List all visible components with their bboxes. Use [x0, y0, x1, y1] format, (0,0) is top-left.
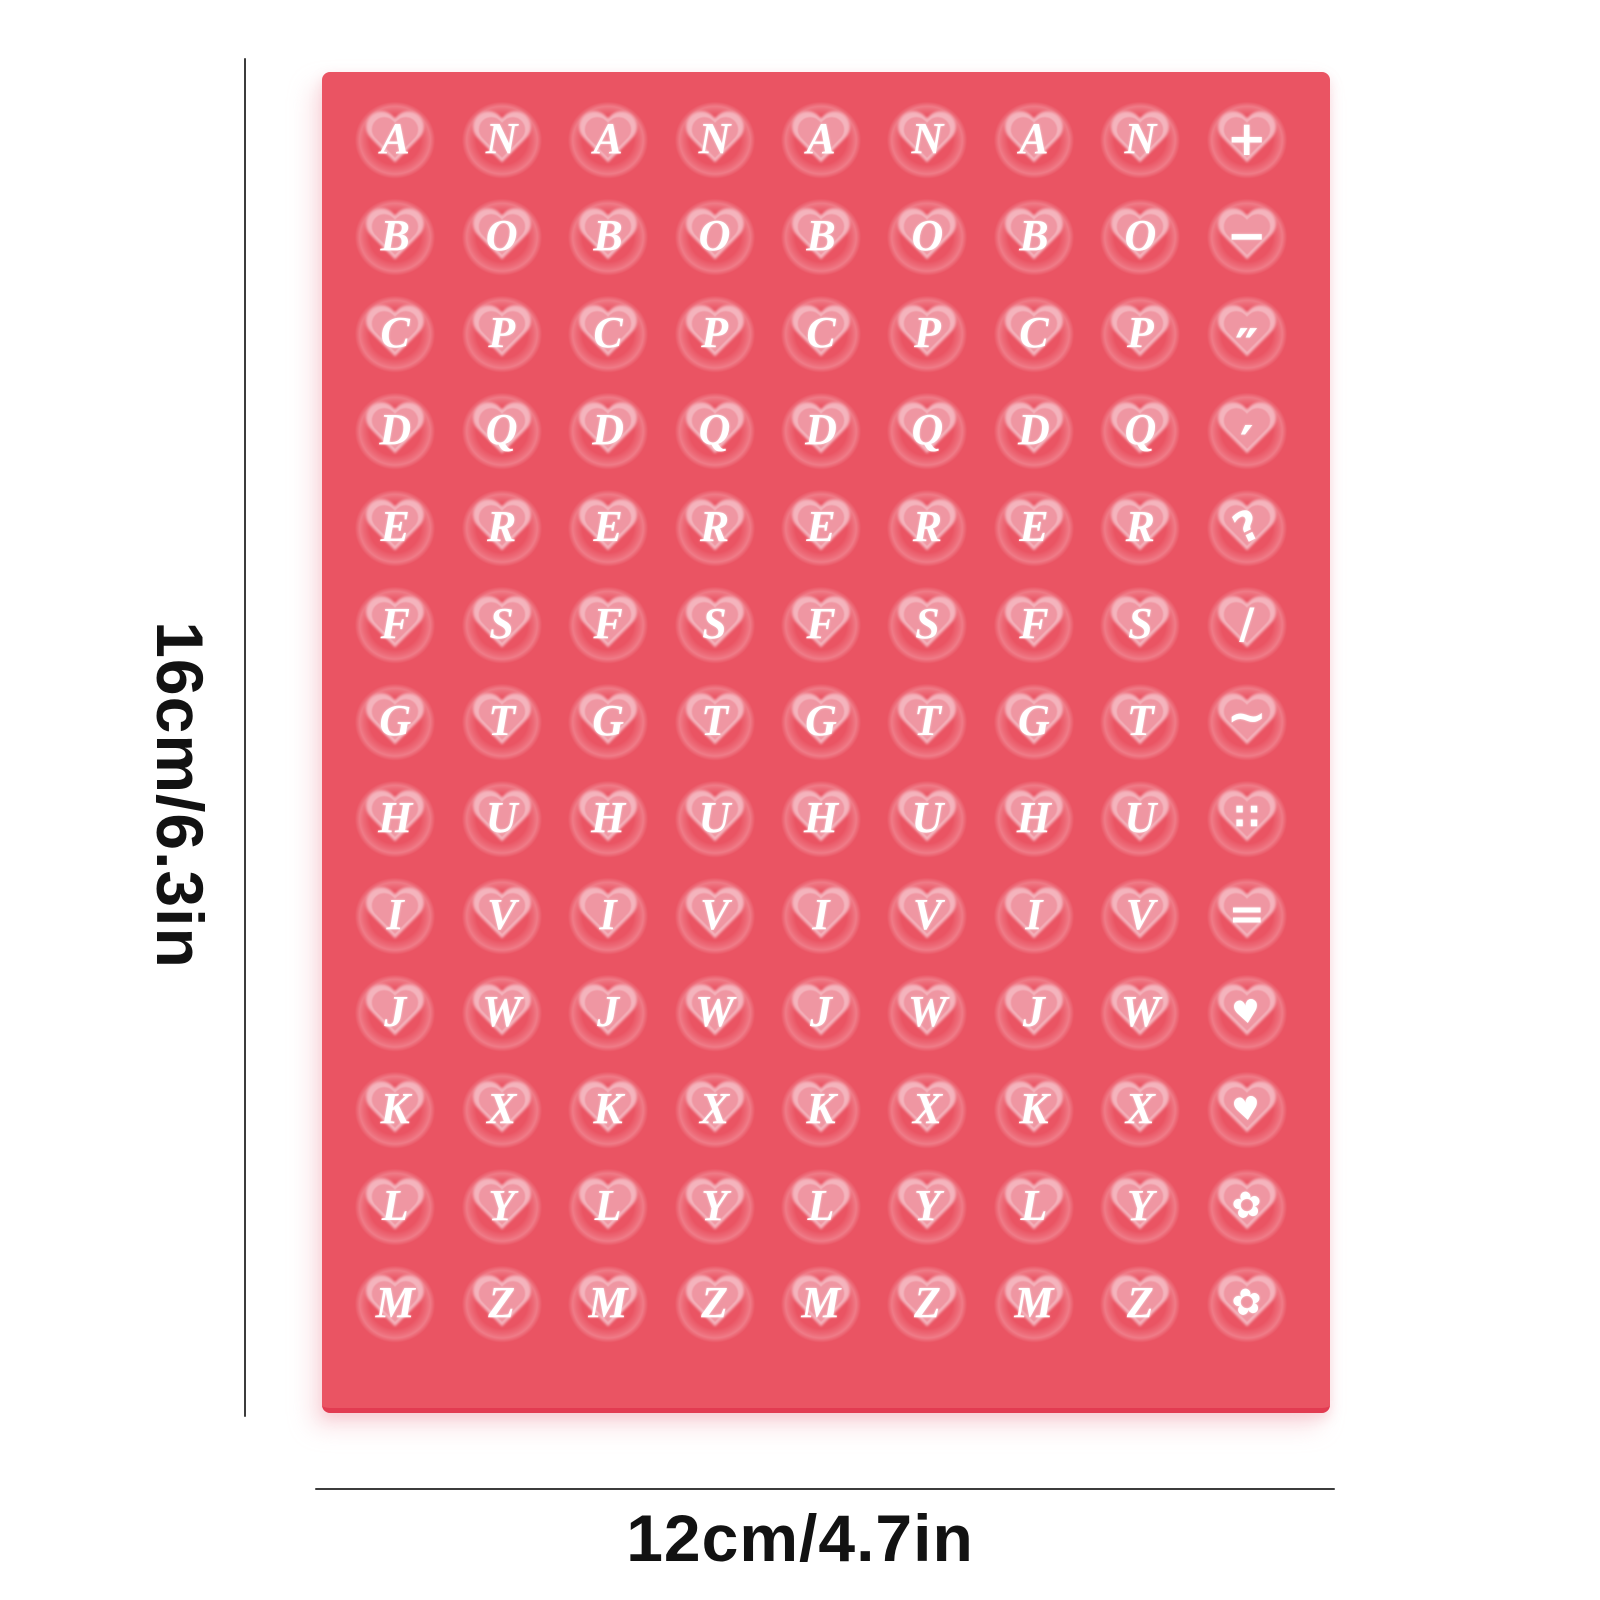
- sticker-letter-x: X: [1087, 1065, 1193, 1162]
- sticker-letter-glyph: I: [812, 893, 829, 937]
- sticker-letter-y: Y: [874, 1162, 980, 1259]
- sticker-letter-glyph: N: [699, 117, 731, 161]
- sticker-letter-glyph: S: [1128, 602, 1152, 646]
- sticker-letter-t: T: [661, 676, 767, 773]
- sticker-letter-a: A: [555, 94, 661, 191]
- sticker-letter-k: K: [768, 1065, 874, 1162]
- sticker-letter-r: R: [661, 482, 767, 579]
- sticker-letter-glyph: T: [1127, 699, 1154, 743]
- sticker-letter-glyph: X: [700, 1087, 729, 1131]
- sticker-letter-p: P: [448, 288, 554, 385]
- sticker-symbol-glyph: ″: [1235, 323, 1258, 375]
- sticker-symbol-quote: ″: [1194, 288, 1300, 385]
- sticker-letter-t: T: [874, 676, 980, 773]
- sticker-symbol-glyph: ~: [1227, 693, 1267, 741]
- sticker-letter-h: H: [342, 774, 448, 871]
- sticker-letter-u: U: [1087, 774, 1193, 871]
- sticker-letter-glyph: Y: [701, 1184, 728, 1228]
- sticker-letter-r: R: [448, 482, 554, 579]
- sticker-letter-glyph: X: [1126, 1087, 1155, 1131]
- sticker-letter-glyph: T: [701, 699, 728, 743]
- sticker-letter-glyph: F: [593, 602, 622, 646]
- sticker-letter-v: V: [1087, 871, 1193, 968]
- sticker-letter-q: Q: [874, 385, 980, 482]
- sticker-letter-r: R: [1087, 482, 1193, 579]
- sticker-letter-glyph: A: [593, 117, 622, 161]
- sticker-letter-glyph: J: [810, 990, 832, 1034]
- sticker-letter-glyph: P: [914, 311, 941, 355]
- sticker-letter-a: A: [981, 94, 1087, 191]
- sticker-letter-glyph: H: [1017, 796, 1051, 840]
- sticker-letter-glyph: A: [381, 117, 410, 161]
- sticker-letter-glyph: K: [1019, 1087, 1048, 1131]
- sticker-letter-g: G: [555, 676, 661, 773]
- sticker-letter-f: F: [342, 579, 448, 676]
- sticker-letter-n: N: [661, 94, 767, 191]
- sticker-letter-b: B: [981, 191, 1087, 288]
- sticker-letter-g: G: [768, 676, 874, 773]
- sticker-letter-glyph: E: [593, 505, 622, 549]
- sticker-letter-l: L: [981, 1162, 1087, 1259]
- sticker-letter-q: Q: [661, 385, 767, 482]
- sticker-letter-glyph: R: [913, 505, 942, 549]
- sticker-letter-glyph: A: [806, 117, 835, 161]
- sticker-letter-h: H: [981, 774, 1087, 871]
- sticker-letter-x: X: [448, 1065, 554, 1162]
- sticker-letter-glyph: O: [699, 214, 731, 258]
- sticker-letter-p: P: [661, 288, 767, 385]
- sticker-symbol-glyph: =: [1228, 893, 1265, 937]
- sticker-letter-glyph: Y: [488, 1184, 515, 1228]
- sticker-letter-c: C: [555, 288, 661, 385]
- sticker-letter-d: D: [981, 385, 1087, 482]
- sticker-letter-h: H: [768, 774, 874, 871]
- sticker-letter-glyph: E: [806, 505, 835, 549]
- sticker-letter-glyph: G: [379, 699, 411, 743]
- sticker-letter-glyph: W: [908, 990, 947, 1034]
- sticker-letter-glyph: M: [376, 1281, 415, 1325]
- sticker-letter-glyph: Z: [701, 1281, 728, 1325]
- sticker-letter-glyph: U: [912, 796, 944, 840]
- sticker-letter-f: F: [768, 579, 874, 676]
- sticker-letter-glyph: J: [1023, 990, 1045, 1034]
- sticker-letter-k: K: [342, 1065, 448, 1162]
- sticker-letter-s: S: [661, 579, 767, 676]
- sticker-letter-y: Y: [1087, 1162, 1193, 1259]
- sticker-symbol-slash: /: [1194, 579, 1300, 676]
- sticker-symbol-flower: ✿: [1194, 1259, 1300, 1356]
- sticker-letter-glyph: T: [914, 699, 941, 743]
- sticker-letter-glyph: Q: [912, 408, 944, 452]
- sticker-symbol-heart: ♥: [1194, 968, 1300, 1065]
- height-dimension-line: [244, 58, 246, 1417]
- sticker-letter-glyph: O: [486, 214, 518, 258]
- sticker-letter-glyph: H: [378, 796, 412, 840]
- sticker-letter-glyph: Z: [914, 1281, 941, 1325]
- sticker-letter-glyph: Z: [1127, 1281, 1154, 1325]
- sticker-letter-glyph: U: [486, 796, 518, 840]
- sticker-letter-w: W: [1087, 968, 1193, 1065]
- sticker-letter-glyph: Q: [1124, 408, 1156, 452]
- sticker-letter-glyph: K: [806, 1087, 835, 1131]
- sticker-letter-glyph: U: [1124, 796, 1156, 840]
- sticker-letter-b: B: [555, 191, 661, 288]
- sticker-letter-s: S: [1087, 579, 1193, 676]
- sticker-letter-glyph: W: [1121, 990, 1160, 1034]
- sticker-letter-u: U: [661, 774, 767, 871]
- sticker-letter-a: A: [768, 94, 874, 191]
- sticker-letter-c: C: [342, 288, 448, 385]
- sticker-letter-glyph: N: [912, 117, 944, 161]
- sticker-letter-d: D: [342, 385, 448, 482]
- sticker-letter-glyph: R: [700, 505, 729, 549]
- sticker-letter-glyph: F: [1019, 602, 1048, 646]
- sticker-letter-c: C: [768, 288, 874, 385]
- sticker-letter-glyph: H: [804, 796, 838, 840]
- sticker-letter-n: N: [448, 94, 554, 191]
- sticker-letter-s: S: [874, 579, 980, 676]
- sticker-letter-glyph: I: [387, 893, 404, 937]
- sticker-letter-u: U: [448, 774, 554, 871]
- sticker-letter-glyph: B: [593, 214, 622, 258]
- sticker-letter-glyph: P: [488, 311, 515, 355]
- sticker-letter-glyph: C: [593, 311, 622, 355]
- sticker-letter-y: Y: [661, 1162, 767, 1259]
- sticker-symbol-glyph: ♥: [1230, 994, 1263, 1030]
- sticker-letter-glyph: M: [801, 1281, 840, 1325]
- sticker-letter-r: R: [874, 482, 980, 579]
- sticker-letter-glyph: L: [1020, 1184, 1047, 1228]
- sticker-letter-glyph: E: [1019, 505, 1048, 549]
- sticker-letter-glyph: U: [699, 796, 731, 840]
- sticker-letter-glyph: K: [593, 1087, 622, 1131]
- sticker-letter-glyph: C: [806, 311, 835, 355]
- sticker-letter-h: H: [555, 774, 661, 871]
- sticker-letter-o: O: [448, 191, 554, 288]
- sticker-letter-glyph: D: [805, 408, 837, 452]
- sticker-letter-glyph: L: [382, 1184, 409, 1228]
- sticker-letter-glyph: Z: [488, 1281, 515, 1325]
- sticker-letter-glyph: K: [381, 1087, 410, 1131]
- sticker-letter-glyph: T: [488, 699, 515, 743]
- sticker-letter-z: Z: [874, 1259, 980, 1356]
- sticker-letter-l: L: [768, 1162, 874, 1259]
- sticker-symbol-glyph: −: [1227, 212, 1267, 260]
- sticker-letter-e: E: [981, 482, 1087, 579]
- sticker-letter-t: T: [1087, 676, 1193, 773]
- sticker-letter-glyph: N: [1124, 117, 1156, 161]
- sticker-letter-f: F: [555, 579, 661, 676]
- sticker-letter-j: J: [555, 968, 661, 1065]
- sticker-letter-n: N: [874, 94, 980, 191]
- sticker-letter-m: M: [981, 1259, 1087, 1356]
- sticker-letter-glyph: J: [384, 990, 406, 1034]
- sticker-letter-w: W: [448, 968, 554, 1065]
- sticker-symbol-glyph: ♥: [1230, 1091, 1263, 1127]
- product-image: 16cm/6.3in ANANANAN+BOBOBOBO−CPCPCPCP″DQ…: [0, 0, 1600, 1600]
- sticker-letter-z: Z: [661, 1259, 767, 1356]
- height-dimension-label: 16cm/6.3in: [140, 585, 220, 1005]
- sticker-letter-i: I: [342, 871, 448, 968]
- sticker-symbol-tilde: ~: [1194, 676, 1300, 773]
- sticker-letter-glyph: M: [589, 1281, 628, 1325]
- sticker-letter-q: Q: [1087, 385, 1193, 482]
- sticker-letter-v: V: [448, 871, 554, 968]
- sticker-letter-z: Z: [448, 1259, 554, 1356]
- sticker-letter-glyph: C: [381, 311, 410, 355]
- sticker-letter-glyph: J: [597, 990, 619, 1034]
- sticker-letter-glyph: L: [595, 1184, 622, 1228]
- sticker-letter-z: Z: [1087, 1259, 1193, 1356]
- sticker-letter-a: A: [342, 94, 448, 191]
- sticker-letter-v: V: [661, 871, 767, 968]
- sticker-letter-glyph: W: [482, 990, 521, 1034]
- sticker-letter-b: B: [342, 191, 448, 288]
- sticker-letter-glyph: C: [1019, 311, 1048, 355]
- sticker-letter-o: O: [874, 191, 980, 288]
- sticker-letter-glyph: Q: [699, 408, 731, 452]
- sticker-letter-j: J: [981, 968, 1087, 1065]
- sticker-letter-glyph: D: [379, 408, 411, 452]
- sticker-letter-i: I: [555, 871, 661, 968]
- sticker-letter-i: I: [981, 871, 1087, 968]
- sticker-letter-glyph: V: [1126, 893, 1155, 937]
- sticker-letter-glyph: Y: [914, 1184, 941, 1228]
- sticker-letter-g: G: [981, 676, 1087, 773]
- sticker-letter-t: T: [448, 676, 554, 773]
- sticker-letter-m: M: [342, 1259, 448, 1356]
- sticker-letter-glyph: G: [805, 699, 837, 743]
- sticker-letter-j: J: [342, 968, 448, 1065]
- sticker-letter-glyph: L: [808, 1184, 835, 1228]
- sticker-symbol-equals: =: [1194, 871, 1300, 968]
- sticker-letter-k: K: [981, 1065, 1087, 1162]
- sticker-letter-glyph: G: [592, 699, 624, 743]
- sticker-letter-glyph: S: [915, 602, 939, 646]
- sticker-letter-glyph: S: [489, 602, 513, 646]
- sticker-letter-d: D: [768, 385, 874, 482]
- sticker-letter-glyph: S: [702, 602, 726, 646]
- sticker-symbol-glyph: ′: [1240, 420, 1254, 472]
- sticker-letter-glyph: P: [701, 311, 728, 355]
- sticker-letter-n: N: [1087, 94, 1193, 191]
- sticker-letter-e: E: [768, 482, 874, 579]
- sticker-letter-glyph: W: [695, 990, 734, 1034]
- sticker-symbol-question: ?: [1194, 482, 1300, 579]
- sticker-letter-y: Y: [448, 1162, 554, 1259]
- sticker-letter-i: I: [768, 871, 874, 968]
- sticker-letter-glyph: F: [806, 602, 835, 646]
- sticker-symbol-glyph: ✿: [1229, 1186, 1265, 1227]
- sticker-symbol-glyph: ✿: [1229, 1283, 1265, 1324]
- sticker-letter-glyph: I: [1025, 893, 1042, 937]
- sticker-letter-o: O: [1087, 191, 1193, 288]
- sticker-letter-w: W: [874, 968, 980, 1065]
- sticker-letter-p: P: [1087, 288, 1193, 385]
- sticker-letter-glyph: B: [381, 214, 410, 258]
- sticker-letter-glyph: A: [1019, 117, 1048, 161]
- sticker-letter-glyph: R: [487, 505, 516, 549]
- sticker-symbol-plus: +: [1194, 94, 1300, 191]
- sticker-symbol-glyph: +: [1227, 115, 1267, 163]
- sticker-letter-o: O: [661, 191, 767, 288]
- sticker-letter-glyph: X: [487, 1087, 516, 1131]
- sticker-symbol-apostrophe: ′: [1194, 385, 1300, 482]
- sticker-letter-glyph: R: [1126, 505, 1155, 549]
- sticker-letter-x: X: [874, 1065, 980, 1162]
- sticker-letter-s: S: [448, 579, 554, 676]
- sticker-grid: ANANANAN+BOBOBOBO−CPCPCPCP″DQDQDQDQ′ERER…: [322, 72, 1330, 1408]
- sticker-letter-b: B: [768, 191, 874, 288]
- sticker-letter-glyph: D: [1018, 408, 1050, 452]
- sticker-letter-d: D: [555, 385, 661, 482]
- sticker-sheet: ANANANAN+BOBOBOBO−CPCPCPCP″DQDQDQDQ′ERER…: [322, 72, 1330, 1413]
- sticker-symbol-glyph: /: [1239, 603, 1254, 645]
- width-dimension-label: 12cm/4.7in: [550, 1502, 1050, 1574]
- sticker-symbol-minus: −: [1194, 191, 1300, 288]
- sticker-letter-glyph: E: [381, 505, 410, 549]
- sticker-letter-m: M: [555, 1259, 661, 1356]
- sticker-letter-glyph: P: [1127, 311, 1154, 355]
- sticker-letter-l: L: [342, 1162, 448, 1259]
- sticker-letter-c: C: [981, 288, 1087, 385]
- sticker-letter-glyph: O: [1124, 214, 1156, 258]
- sticker-letter-k: K: [555, 1065, 661, 1162]
- sticker-letter-glyph: F: [381, 602, 410, 646]
- sticker-letter-e: E: [342, 482, 448, 579]
- sticker-symbol-heart: ♥: [1194, 1065, 1300, 1162]
- width-dimension-line: [315, 1488, 1335, 1490]
- sticker-letter-glyph: B: [1019, 214, 1048, 258]
- sticker-letter-glyph: D: [592, 408, 624, 452]
- sticker-letter-l: L: [555, 1162, 661, 1259]
- sticker-letter-glyph: M: [1014, 1281, 1053, 1325]
- sticker-letter-q: Q: [448, 385, 554, 482]
- sticker-symbol-glyph: ∷: [1234, 800, 1259, 836]
- sticker-letter-glyph: G: [1018, 699, 1050, 743]
- sticker-letter-glyph: I: [600, 893, 617, 937]
- sticker-symbol-dots: ∷: [1194, 774, 1300, 871]
- sticker-letter-glyph: V: [913, 893, 942, 937]
- sticker-letter-j: J: [768, 968, 874, 1065]
- sticker-letter-m: M: [768, 1259, 874, 1356]
- sticker-letter-g: G: [342, 676, 448, 773]
- sticker-letter-v: V: [874, 871, 980, 968]
- sticker-symbol-flower: ✿: [1194, 1162, 1300, 1259]
- sticker-letter-x: X: [661, 1065, 767, 1162]
- sticker-letter-glyph: B: [806, 214, 835, 258]
- sticker-letter-glyph: O: [912, 214, 944, 258]
- sticker-letter-u: U: [874, 774, 980, 871]
- sticker-letter-p: P: [874, 288, 980, 385]
- sticker-letter-e: E: [555, 482, 661, 579]
- sticker-letter-glyph: H: [591, 796, 625, 840]
- sticker-letter-glyph: V: [487, 893, 516, 937]
- sticker-letter-w: W: [661, 968, 767, 1065]
- sticker-letter-f: F: [981, 579, 1087, 676]
- sticker-letter-glyph: X: [913, 1087, 942, 1131]
- sticker-letter-glyph: Q: [486, 408, 518, 452]
- sticker-letter-glyph: V: [700, 893, 729, 937]
- sticker-letter-glyph: Y: [1127, 1184, 1154, 1228]
- sticker-letter-glyph: N: [486, 117, 518, 161]
